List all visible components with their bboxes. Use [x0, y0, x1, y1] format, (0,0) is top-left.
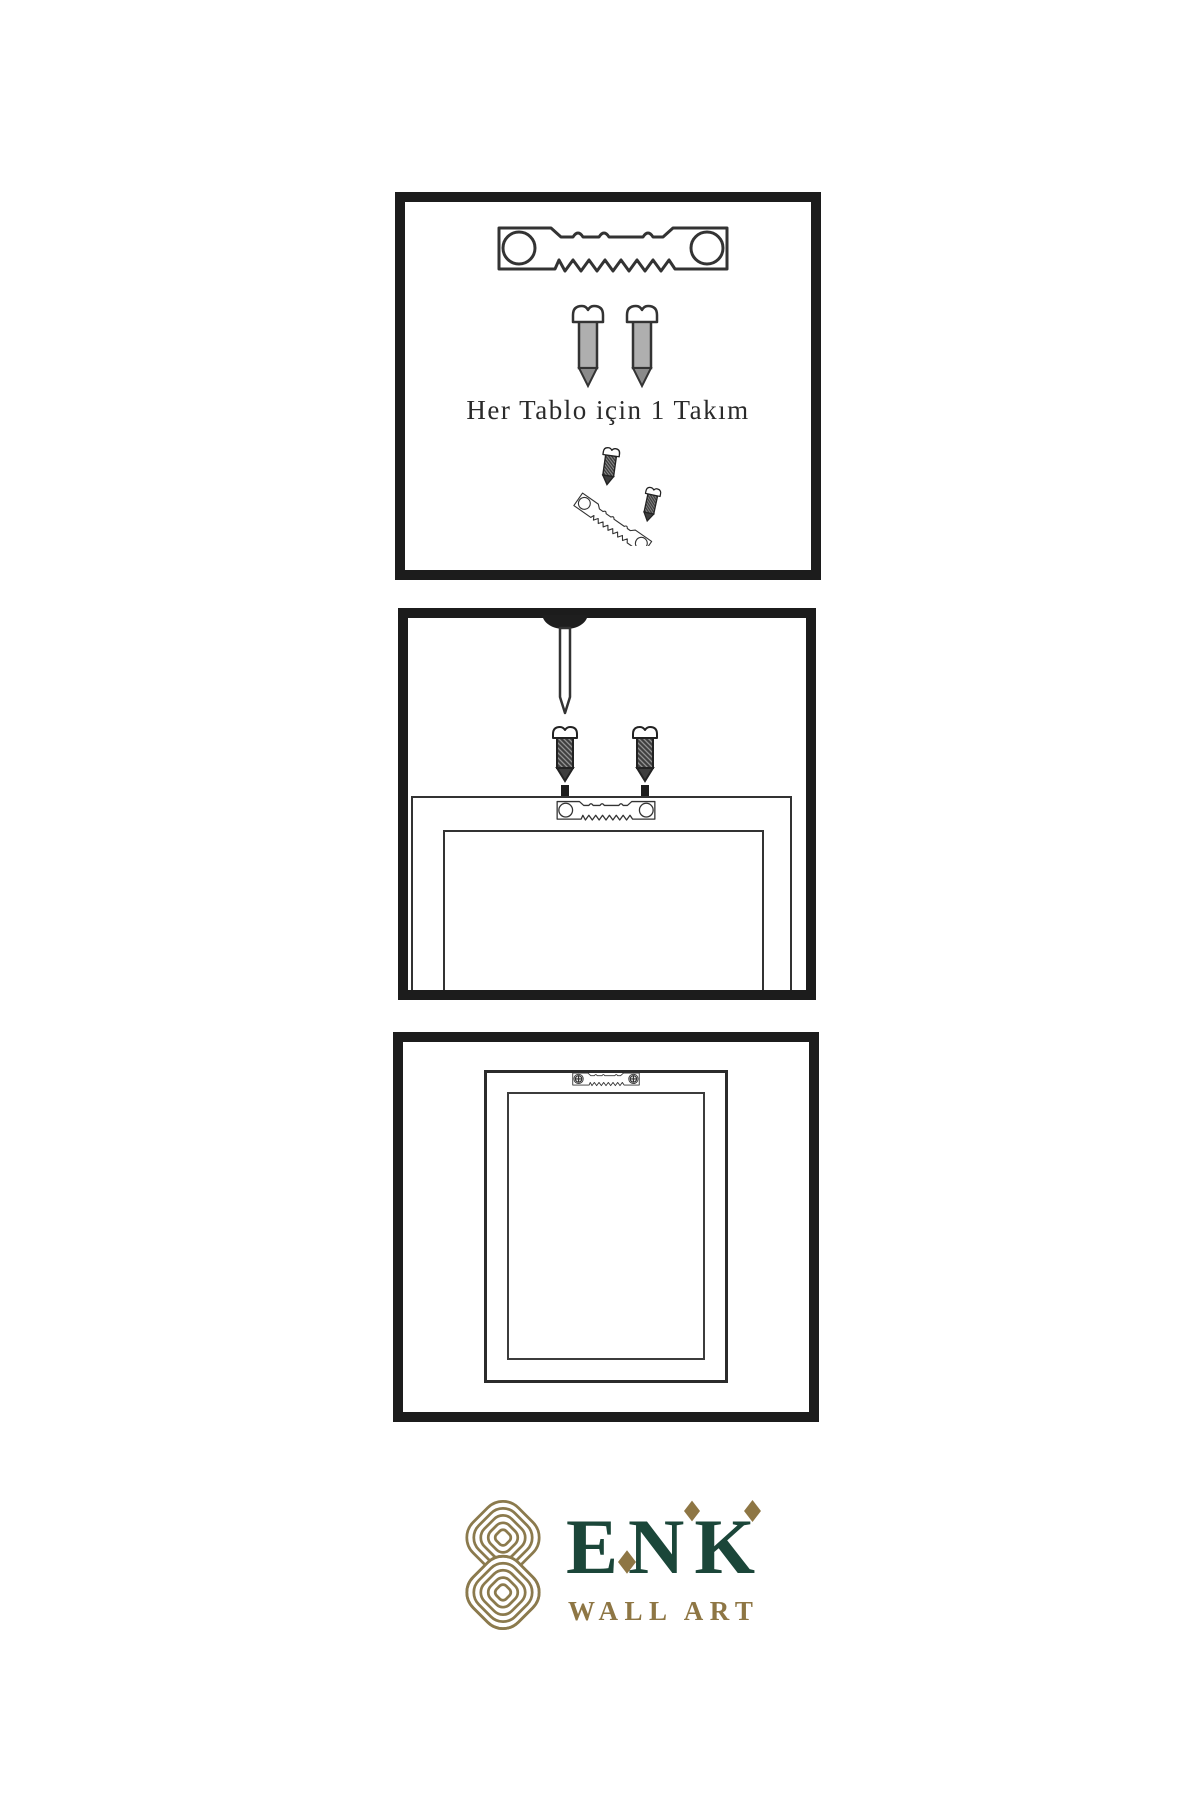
interlaced-knot-icon [438, 1500, 568, 1630]
angled-hanger-with-screws-icon [568, 444, 686, 546]
brand-subtitle: WALL ART [568, 1596, 759, 1627]
brand-wordmark: ENK [566, 1504, 796, 1600]
diamond-accent-icon [618, 1550, 636, 1574]
diamond-accent-icon [684, 1500, 700, 1522]
step-3-panel [393, 1032, 819, 1422]
sawtooth-hanger-icon [493, 222, 733, 278]
hung-frame-inner-outline [507, 1092, 705, 1360]
screw-icon [631, 724, 659, 784]
brand-footer: ENK WALL ART [438, 1494, 798, 1644]
screw-icon [624, 302, 660, 390]
screw-icon [570, 302, 606, 390]
step-1-caption: Her Tablo için 1 Takım [405, 395, 811, 426]
step-2-panel [398, 608, 816, 1000]
diamond-accent-icon [744, 1500, 761, 1522]
instruction-sheet: Her Tablo için 1 Takım [0, 0, 1200, 1800]
sawtooth-hanger-screwed-icon [571, 1071, 641, 1088]
wall-nail-icon [541, 615, 589, 715]
sawtooth-hanger-icon [554, 799, 658, 823]
step-1-panel: Her Tablo için 1 Takım [395, 192, 821, 580]
brand-name: ENK [566, 1503, 765, 1590]
frame-back-inner-outline [443, 830, 764, 990]
screw-icon [551, 724, 579, 784]
